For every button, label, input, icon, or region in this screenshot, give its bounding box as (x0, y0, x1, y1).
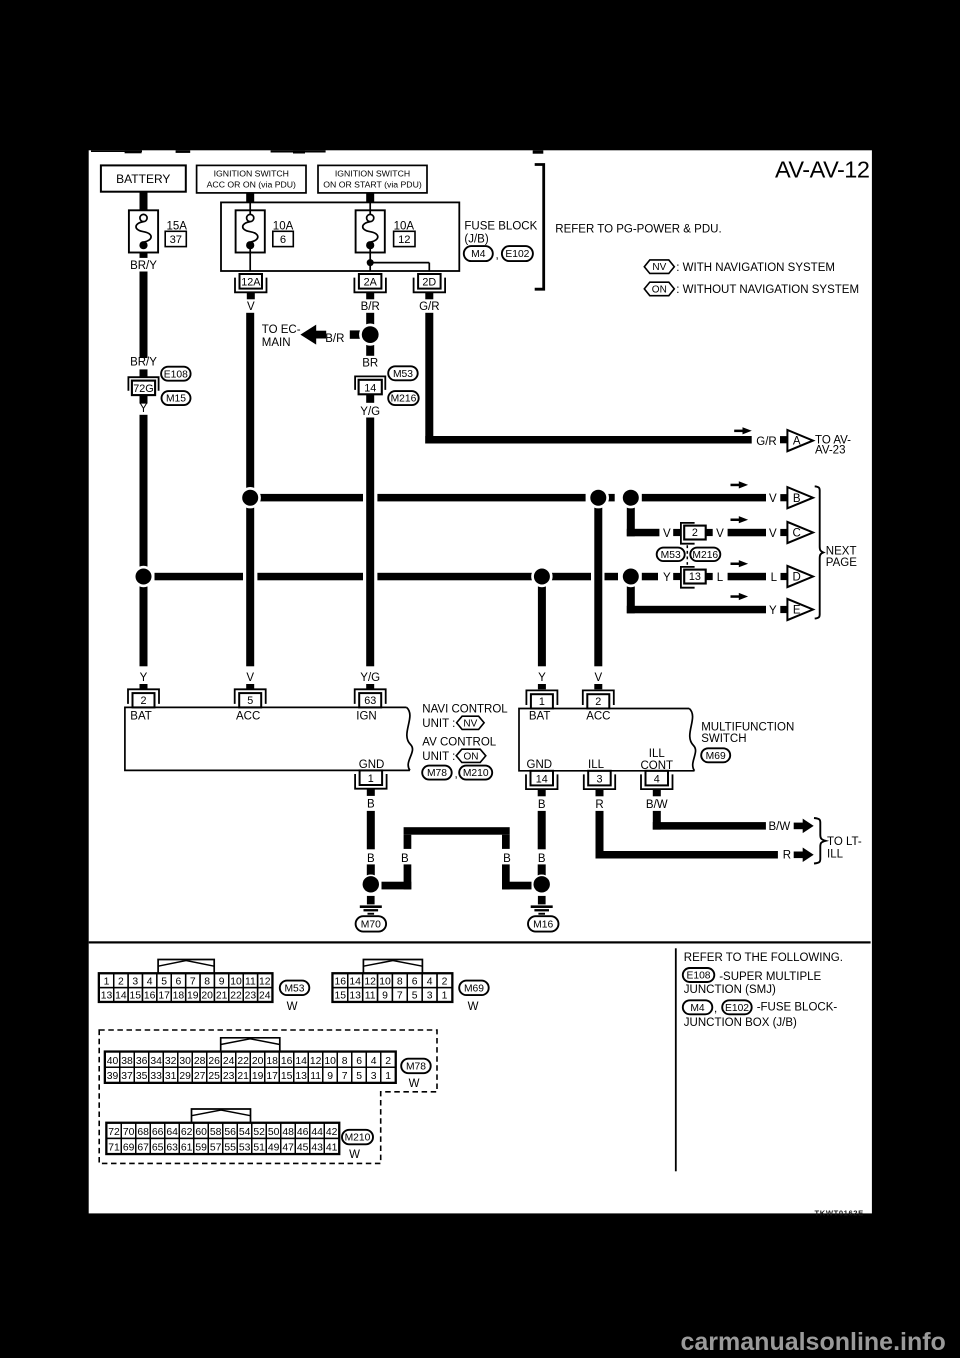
svg-text:UNIT :: UNIT : (422, 718, 455, 730)
svg-text:60: 60 (195, 1127, 207, 1138)
svg-text:B/W: B/W (646, 799, 668, 811)
svg-text:11: 11 (245, 976, 256, 987)
svg-text:V: V (594, 672, 602, 684)
svg-text:5: 5 (247, 695, 253, 707)
svg-text:1: 1 (385, 1071, 391, 1082)
svg-text:M78: M78 (427, 768, 447, 779)
svg-text:Y: Y (538, 672, 546, 684)
svg-text:V: V (769, 528, 777, 540)
svg-text:,: , (455, 769, 458, 781)
svg-text:9: 9 (219, 976, 225, 987)
svg-text:12: 12 (310, 1056, 322, 1067)
svg-text:3: 3 (596, 774, 602, 786)
svg-text:M53: M53 (393, 369, 413, 380)
svg-text:7: 7 (342, 1071, 348, 1082)
svg-text:11: 11 (310, 1071, 321, 1082)
svg-text:33: 33 (150, 1071, 162, 1082)
svg-text:W: W (468, 1001, 479, 1013)
svg-text:13: 13 (349, 990, 361, 1001)
svg-text:7: 7 (397, 990, 403, 1001)
svg-text:ACC: ACC (586, 711, 610, 723)
svg-text:G/R: G/R (419, 301, 439, 313)
svg-text:TKWT0162E: TKWT0162E (815, 1209, 864, 1218)
svg-text:56: 56 (224, 1127, 236, 1138)
svg-text:W: W (349, 1149, 360, 1161)
svg-text:1: 1 (368, 773, 374, 785)
svg-text:63: 63 (364, 695, 376, 707)
svg-text:2A: 2A (364, 277, 378, 289)
svg-text:68: 68 (137, 1127, 149, 1138)
svg-text:REFER TO PG-POWER & PDU.: REFER TO PG-POWER & PDU. (555, 224, 721, 236)
svg-text:71: 71 (108, 1142, 120, 1153)
svg-text:51: 51 (253, 1142, 265, 1153)
svg-text:BATTERY: BATTERY (116, 172, 170, 186)
svg-text:E102: E102 (725, 1003, 749, 1014)
svg-text:17: 17 (158, 990, 170, 1001)
svg-text:70: 70 (123, 1127, 135, 1138)
svg-text:carmanualsonline.info: carmanualsonline.info (681, 1328, 946, 1356)
svg-text:13: 13 (295, 1071, 307, 1082)
svg-text:BAT: BAT (529, 711, 551, 723)
svg-text:,: , (496, 250, 499, 262)
svg-text:L: L (717, 572, 724, 584)
svg-text:24: 24 (223, 1056, 235, 1067)
svg-text:2: 2 (385, 1056, 391, 1067)
svg-text:17: 17 (266, 1071, 278, 1082)
svg-text:26: 26 (208, 1056, 220, 1067)
svg-text:10: 10 (230, 976, 242, 987)
svg-text:23: 23 (223, 1071, 235, 1082)
svg-text:4: 4 (654, 774, 660, 786)
svg-text:12: 12 (364, 976, 376, 987)
svg-text:14: 14 (364, 382, 376, 394)
svg-text:8: 8 (204, 976, 210, 987)
svg-text:48: 48 (282, 1127, 294, 1138)
svg-text:V: V (247, 301, 255, 313)
svg-text:UNIT :: UNIT : (422, 751, 455, 763)
svg-text:3: 3 (371, 1071, 377, 1082)
svg-text:19: 19 (187, 990, 199, 1001)
svg-text:E108: E108 (164, 369, 188, 380)
svg-text:34: 34 (150, 1056, 162, 1067)
svg-text:JUNCTION (SMJ): JUNCTION (SMJ) (684, 984, 776, 996)
svg-text:30: 30 (179, 1056, 191, 1067)
svg-text:B/W: B/W (769, 821, 791, 833)
svg-text:65: 65 (152, 1142, 164, 1153)
svg-text:ILL: ILL (588, 759, 605, 771)
svg-text:16: 16 (335, 976, 347, 987)
svg-text:24: 24 (259, 990, 271, 1001)
svg-text:2: 2 (442, 976, 448, 987)
svg-text:BR/Y: BR/Y (130, 356, 157, 368)
svg-text:FUSE BLOCK: FUSE BLOCK (464, 221, 537, 233)
svg-text:25: 25 (208, 1071, 220, 1082)
svg-text:V: V (663, 528, 671, 540)
svg-text:GND: GND (527, 759, 553, 771)
svg-text:67: 67 (137, 1142, 149, 1153)
svg-text:6: 6 (280, 234, 286, 246)
svg-text:6: 6 (412, 976, 418, 987)
svg-text:W: W (287, 1001, 298, 1013)
svg-text:42: 42 (326, 1127, 338, 1138)
svg-text:Y/G: Y/G (360, 406, 380, 418)
svg-text:27: 27 (194, 1071, 206, 1082)
svg-text:19: 19 (252, 1071, 264, 1082)
svg-text:C: C (793, 528, 801, 540)
svg-text:M78: M78 (406, 1062, 426, 1073)
svg-text:BR/Y: BR/Y (130, 260, 157, 272)
svg-text:45: 45 (297, 1142, 309, 1153)
svg-text:2: 2 (118, 976, 124, 987)
svg-text:64: 64 (166, 1127, 178, 1138)
svg-text:15: 15 (130, 990, 142, 1001)
svg-text:41: 41 (326, 1142, 338, 1153)
svg-text:E108: E108 (686, 971, 710, 982)
svg-text:ACC OR ON (via PDU): ACC OR ON (via PDU) (207, 179, 296, 189)
svg-text:ON: ON (652, 284, 667, 295)
svg-text:20: 20 (201, 990, 213, 1001)
svg-text:23: 23 (245, 990, 257, 1001)
svg-text:R: R (595, 799, 603, 811)
svg-text:6: 6 (356, 1056, 362, 1067)
svg-text:49: 49 (268, 1142, 280, 1153)
svg-text:PAGE: PAGE (826, 557, 857, 569)
svg-text:4: 4 (371, 1056, 377, 1067)
svg-text:IGNITION SWITCH: IGNITION SWITCH (335, 168, 410, 178)
svg-text:M70: M70 (361, 920, 381, 931)
svg-text:1: 1 (442, 990, 448, 1001)
svg-text:63: 63 (166, 1142, 178, 1153)
svg-text:M216: M216 (391, 394, 417, 405)
svg-text:B: B (401, 853, 409, 865)
svg-text:36: 36 (136, 1056, 148, 1067)
svg-text:15: 15 (335, 990, 347, 1001)
svg-text:61: 61 (181, 1142, 193, 1153)
svg-text:35: 35 (136, 1071, 148, 1082)
svg-text:ON: ON (464, 751, 479, 762)
svg-text:4: 4 (427, 976, 433, 987)
svg-text:62: 62 (181, 1127, 193, 1138)
svg-text:44: 44 (311, 1127, 323, 1138)
svg-text:12: 12 (398, 234, 410, 246)
svg-text:V: V (716, 528, 724, 540)
svg-text:M53: M53 (284, 984, 304, 995)
svg-text:MAIN: MAIN (262, 337, 291, 349)
svg-text:B: B (538, 853, 546, 865)
svg-text:21: 21 (216, 990, 228, 1001)
svg-text:1: 1 (539, 696, 545, 708)
svg-text:14: 14 (349, 976, 361, 987)
svg-text:59: 59 (195, 1142, 207, 1153)
svg-text:54: 54 (239, 1127, 251, 1138)
svg-text:V: V (769, 493, 777, 505)
svg-text:BAT: BAT (130, 711, 152, 723)
svg-text:M69: M69 (464, 984, 484, 995)
svg-text:3: 3 (427, 990, 433, 1001)
svg-text:14: 14 (115, 990, 127, 1001)
svg-text:Y/G: Y/G (360, 672, 380, 684)
svg-text:3: 3 (132, 976, 138, 987)
svg-text:-SUPER MULTIPLE: -SUPER MULTIPLE (719, 971, 821, 983)
svg-text:G/R: G/R (756, 436, 776, 448)
svg-text:Y: Y (140, 672, 148, 684)
svg-text:L: L (771, 572, 778, 584)
svg-text:72: 72 (108, 1127, 120, 1138)
svg-text:AV-AV-12: AV-AV-12 (775, 157, 869, 183)
svg-text:M69: M69 (706, 751, 726, 762)
svg-text:M4: M4 (471, 249, 486, 260)
svg-text:BR: BR (362, 357, 378, 369)
svg-text:M210: M210 (345, 1133, 371, 1144)
svg-text:5: 5 (412, 990, 418, 1001)
svg-text:JUNCTION BOX (J/B): JUNCTION BOX (J/B) (684, 1017, 797, 1029)
svg-text:4: 4 (147, 976, 153, 987)
svg-text:6: 6 (176, 976, 182, 987)
svg-text:B/R: B/R (325, 333, 344, 345)
svg-text:B: B (503, 853, 511, 865)
svg-text:NAVI CONTROL: NAVI CONTROL (422, 704, 508, 716)
svg-text:14: 14 (295, 1056, 307, 1067)
svg-text:AV-23: AV-23 (815, 445, 845, 457)
svg-text:12A: 12A (241, 277, 261, 289)
svg-text:13: 13 (101, 990, 113, 1001)
svg-text:55: 55 (224, 1142, 236, 1153)
svg-text:REFER TO THE FOLLOWING.: REFER TO THE FOLLOWING. (684, 952, 843, 964)
svg-text:10: 10 (324, 1056, 336, 1067)
svg-text:20: 20 (252, 1056, 264, 1067)
svg-text:(J/B): (J/B) (464, 233, 488, 245)
svg-text:40: 40 (107, 1056, 119, 1067)
svg-text:37: 37 (170, 234, 182, 246)
svg-text:Y: Y (663, 572, 671, 584)
svg-text:11: 11 (365, 990, 376, 1001)
svg-text:16: 16 (144, 990, 156, 1001)
svg-text:15: 15 (281, 1071, 293, 1082)
svg-text:A: A (793, 436, 801, 448)
svg-text:31: 31 (165, 1071, 177, 1082)
svg-text:38: 38 (121, 1056, 133, 1067)
svg-text:2: 2 (140, 695, 146, 707)
svg-text:GND: GND (359, 759, 385, 771)
svg-text:18: 18 (173, 990, 185, 1001)
svg-text:28: 28 (194, 1056, 206, 1067)
svg-text:10: 10 (379, 976, 391, 987)
svg-text:69: 69 (123, 1142, 135, 1153)
svg-text:13: 13 (689, 571, 701, 583)
svg-text:ILL: ILL (649, 748, 666, 760)
svg-text:2D: 2D (422, 277, 436, 289)
svg-text:37: 37 (121, 1071, 133, 1082)
svg-text:7: 7 (190, 976, 196, 987)
svg-text:SWITCH: SWITCH (701, 733, 746, 745)
svg-text:22: 22 (230, 990, 242, 1001)
svg-text:32: 32 (165, 1056, 177, 1067)
svg-text:M210: M210 (463, 768, 489, 779)
svg-text:M4: M4 (690, 1003, 705, 1014)
svg-text:22: 22 (237, 1056, 249, 1067)
svg-text:53: 53 (239, 1142, 251, 1153)
svg-text:B: B (367, 853, 375, 865)
svg-text:E102: E102 (505, 249, 529, 260)
svg-text:21: 21 (237, 1071, 249, 1082)
svg-text:2: 2 (595, 696, 601, 708)
svg-text:IGNITION SWITCH: IGNITION SWITCH (214, 168, 289, 178)
svg-text:18: 18 (266, 1056, 278, 1067)
svg-text:TO EC-: TO EC- (262, 324, 301, 336)
svg-text:57: 57 (210, 1142, 222, 1153)
svg-text:66: 66 (152, 1127, 164, 1138)
svg-text:14: 14 (536, 774, 548, 786)
svg-text:M16: M16 (533, 920, 553, 931)
svg-text:AV CONTROL: AV CONTROL (422, 737, 497, 749)
svg-text:M216: M216 (692, 550, 718, 561)
svg-text:12: 12 (259, 976, 271, 987)
svg-text:ON OR START (via PDU): ON OR START (via PDU) (323, 179, 422, 189)
svg-text:46: 46 (297, 1127, 309, 1138)
svg-text:B: B (538, 799, 546, 811)
svg-text:50: 50 (268, 1127, 280, 1138)
svg-text:Y: Y (140, 403, 148, 415)
svg-text:5: 5 (161, 976, 167, 987)
svg-text:V: V (246, 672, 254, 684)
svg-text:W: W (409, 1078, 420, 1090)
svg-text:5: 5 (356, 1071, 362, 1082)
svg-text:D: D (793, 572, 801, 584)
svg-text:B: B (793, 493, 801, 505)
svg-text:IGN: IGN (356, 711, 376, 723)
svg-text:M15: M15 (166, 394, 186, 405)
svg-text:: WITHOUT NAVIGATION SYSTEM: : WITHOUT NAVIGATION SYSTEM (676, 284, 859, 296)
svg-text:B/R: B/R (361, 301, 380, 313)
svg-text:,: , (714, 1003, 717, 1015)
svg-text:72G: 72G (133, 383, 153, 395)
svg-text:8: 8 (342, 1056, 348, 1067)
svg-text:8: 8 (397, 976, 403, 987)
svg-text:NV: NV (463, 718, 477, 729)
svg-text:39: 39 (107, 1071, 119, 1082)
svg-text:NV: NV (652, 262, 666, 273)
svg-text:E: E (793, 605, 801, 617)
svg-text:B: B (367, 799, 375, 811)
svg-text:ILL: ILL (827, 848, 844, 860)
svg-text:R: R (783, 850, 791, 862)
svg-text:2: 2 (692, 527, 698, 539)
svg-text:47: 47 (282, 1142, 294, 1153)
svg-text:MULTIFUNCTION: MULTIFUNCTION (701, 721, 794, 733)
svg-text:58: 58 (210, 1127, 222, 1138)
svg-text:9: 9 (327, 1071, 333, 1082)
svg-text:29: 29 (179, 1071, 191, 1082)
svg-text:52: 52 (253, 1127, 265, 1138)
svg-text:1: 1 (104, 976, 110, 987)
svg-text:-FUSE BLOCK-: -FUSE BLOCK- (757, 1002, 838, 1014)
svg-text:: WITH NAVIGATION SYSTEM: : WITH NAVIGATION SYSTEM (676, 262, 835, 274)
svg-text:NEXT: NEXT (826, 545, 857, 557)
svg-text:Y: Y (769, 605, 777, 617)
svg-text:9: 9 (382, 990, 388, 1001)
svg-text:TO LT-: TO LT- (827, 836, 862, 848)
svg-text:43: 43 (311, 1142, 323, 1153)
svg-text:16: 16 (281, 1056, 293, 1067)
svg-text:ACC: ACC (236, 711, 260, 723)
svg-text:M53: M53 (661, 550, 681, 561)
